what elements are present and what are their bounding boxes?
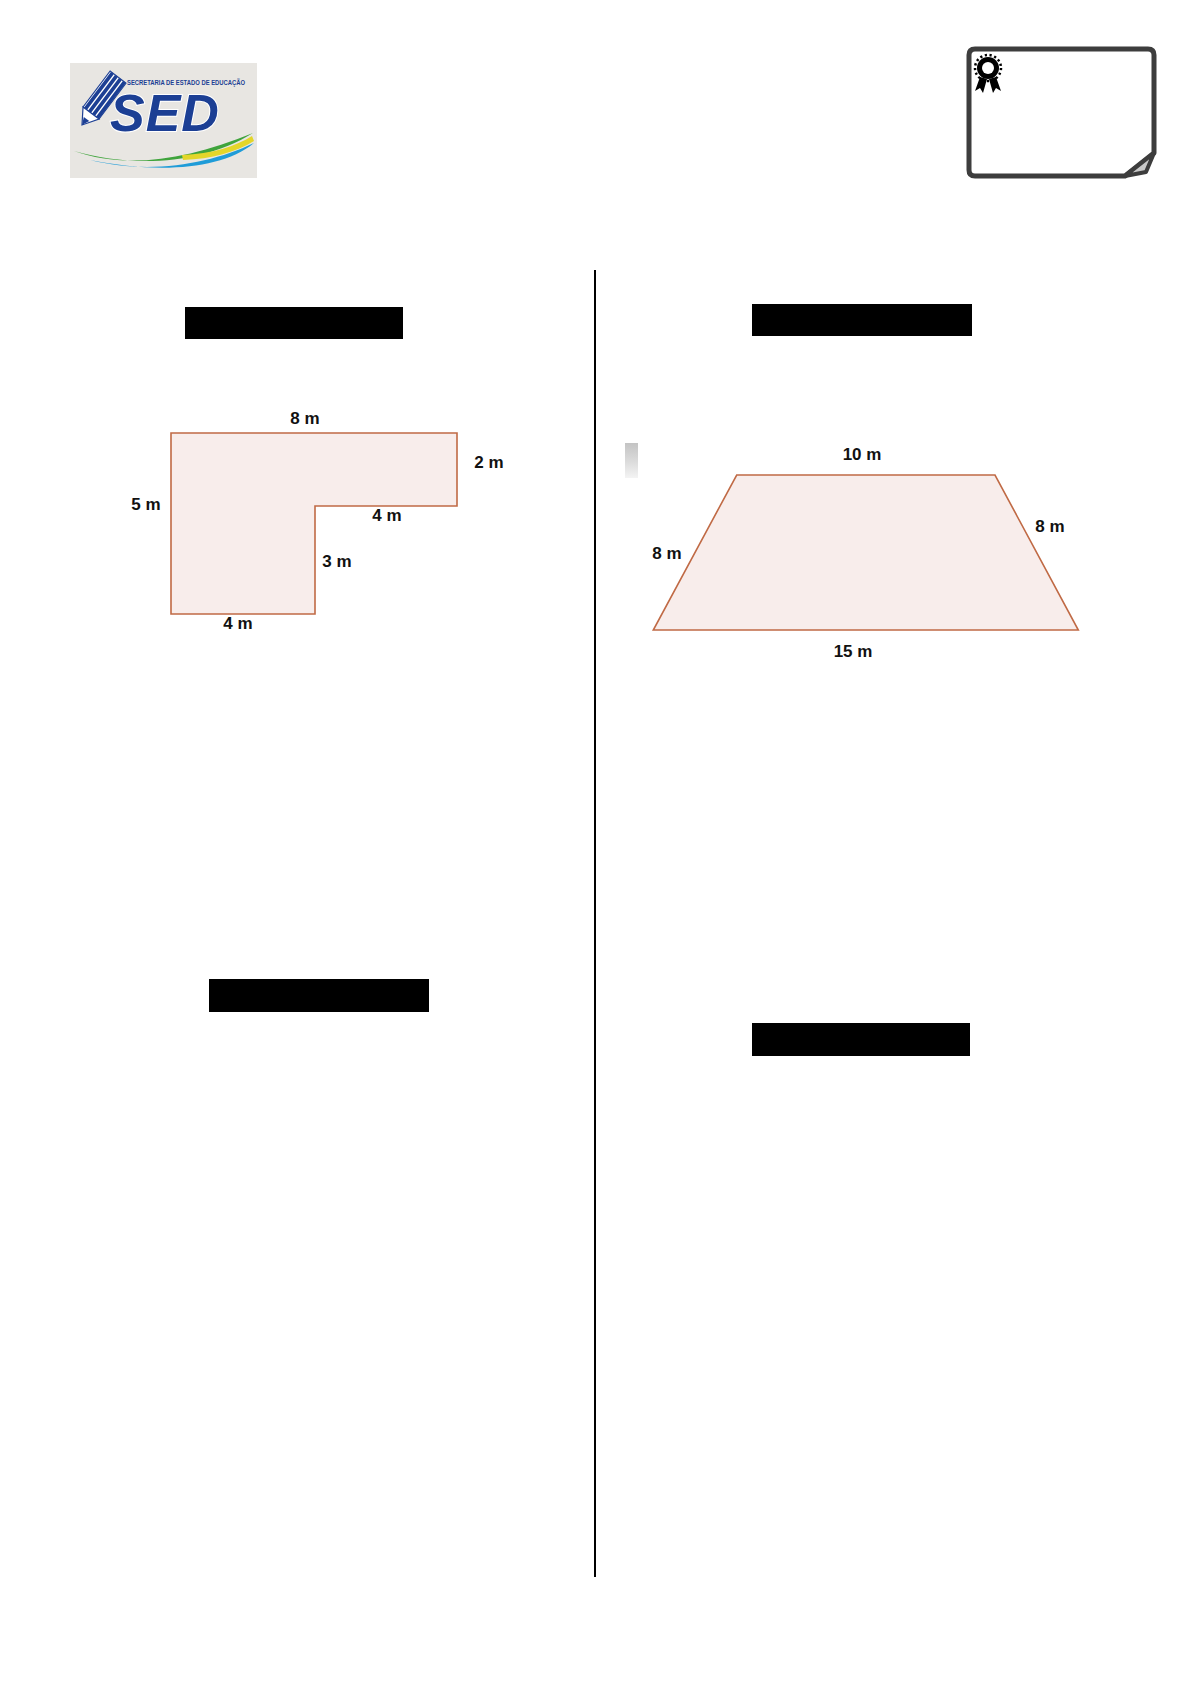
redacted-title-bar-1 <box>185 307 403 339</box>
dimension-label-inner-vertical: 3 m <box>322 552 351 572</box>
dimension-label-right: 8 m <box>1035 517 1064 537</box>
dimension-label-left: 8 m <box>652 544 681 564</box>
l-shape-polygon <box>171 433 457 614</box>
sed-logo: SECRETARIA DE ESTADO DE EDUCAÇÃO SED <box>70 63 257 178</box>
dimension-label-bottom: 15 m <box>834 642 873 662</box>
dimension-label-right: 2 m <box>474 453 503 473</box>
certificate-note <box>963 43 1160 182</box>
dimension-label-top: 8 m <box>290 409 319 429</box>
redacted-title-bar-2 <box>752 304 972 336</box>
column-divider <box>594 270 596 1577</box>
trapezoid-polygon <box>653 475 1078 630</box>
worksheet-page: SECRETARIA DE ESTADO DE EDUCAÇÃO SED 8 m <box>0 0 1190 1684</box>
dimension-label-inner-horizontal: 4 m <box>372 506 401 526</box>
redacted-title-bar-4 <box>752 1023 970 1056</box>
logo-acronym: SED <box>110 84 220 142</box>
trapezoid-figure <box>620 440 1100 640</box>
dimension-label-bottom: 4 m <box>223 614 252 634</box>
l-shape-figure <box>160 420 480 625</box>
dimension-label-top: 10 m <box>843 445 882 465</box>
dimension-label-left: 5 m <box>131 495 160 515</box>
redacted-title-bar-3 <box>209 979 429 1012</box>
